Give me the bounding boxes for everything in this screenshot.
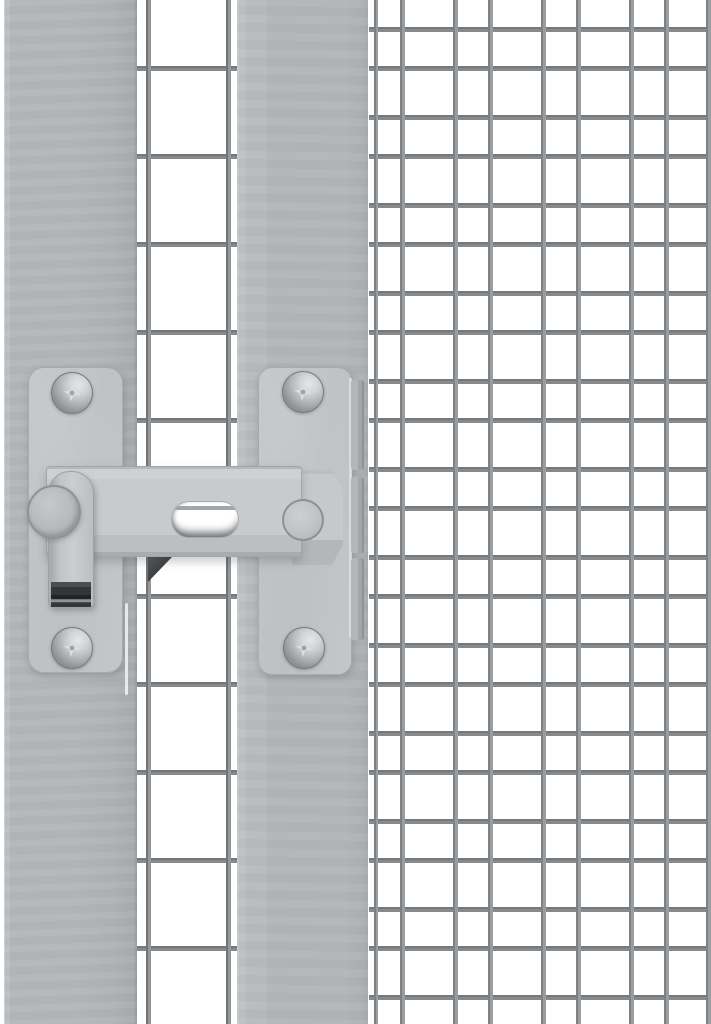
screw-bottom-left	[51, 627, 93, 669]
phillips-recess-icon	[293, 382, 314, 403]
catch-tab	[351, 558, 364, 640]
latch-grip	[51, 582, 91, 607]
fine-mesh-edge-wire	[706, 0, 711, 1024]
plate-edge-highlight	[125, 603, 128, 695]
phillips-recess-icon	[62, 383, 83, 404]
screw-top-left	[51, 372, 93, 414]
fine-wire-mesh	[369, 0, 711, 1024]
screw-bottom-right	[283, 627, 325, 669]
latch-slot	[172, 502, 238, 537]
catch-tab	[351, 380, 364, 470]
screw-top-right	[282, 371, 324, 413]
latch-rivet	[282, 499, 324, 541]
latch-pivot	[27, 485, 81, 539]
phillips-recess-icon	[294, 638, 315, 659]
phillips-recess-icon	[62, 638, 83, 659]
catch-tab	[351, 477, 364, 553]
gate-latch-product-photo	[0, 0, 711, 1024]
fine-mesh-vertical-wires	[374, 0, 711, 1024]
wire-through-slot	[172, 506, 238, 510]
